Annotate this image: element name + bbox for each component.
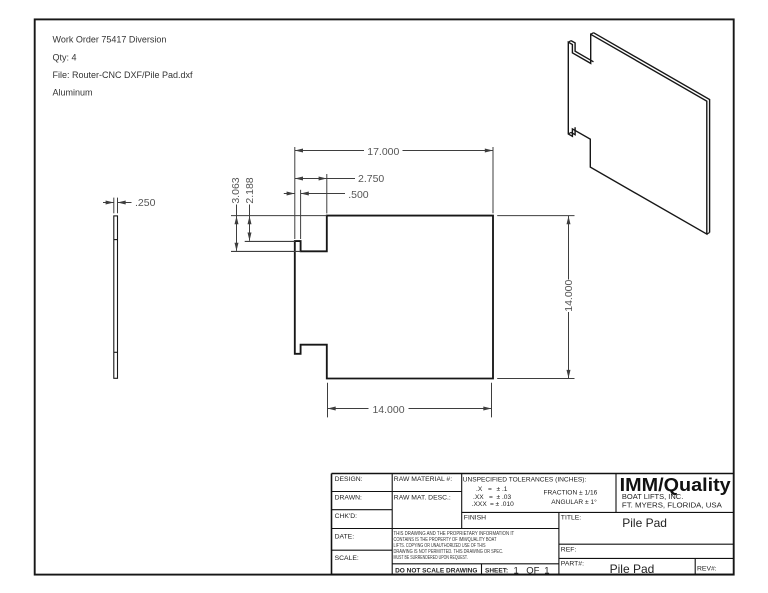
svg-text:SCALE:: SCALE: [335, 555, 359, 562]
svg-text:FINISH: FINISH [464, 515, 486, 522]
svg-text:Pile Pad: Pile Pad [610, 562, 655, 576]
svg-text:2.750: 2.750 [358, 173, 384, 185]
svg-text:REV#:: REV#: [697, 566, 717, 573]
svg-text:PART#:: PART#: [561, 561, 584, 568]
svg-text:.500: .500 [348, 189, 369, 201]
svg-text:UNSPECIFIED TOLERANCES (INCHES: UNSPECIFIED TOLERANCES (INCHES): [463, 476, 587, 483]
svg-text:ANGULAR ± 1°: ANGULAR ± 1° [551, 498, 597, 506]
svg-text:.250: .250 [135, 197, 156, 209]
svg-text:DESIGN:: DESIGN: [335, 476, 363, 483]
svg-text:14.000: 14.000 [372, 404, 404, 416]
svg-text:.XXX=± .010: .XXX=± .010 [472, 501, 514, 508]
svg-text:RAW MAT. DESC.:: RAW MAT. DESC.: [394, 495, 451, 502]
svg-text:TITLE:: TITLE: [561, 515, 582, 522]
svg-text:DRAWN:: DRAWN: [335, 495, 362, 502]
svg-text:DATE:: DATE: [335, 533, 355, 540]
svg-text:BOAT LIFTS, INC.: BOAT LIFTS, INC. [622, 492, 683, 501]
svg-text:DO NOT SCALE DRAWING: DO NOT SCALE DRAWING [395, 568, 477, 575]
svg-text:FRACTION ± 1/16: FRACTION ± 1/16 [544, 490, 598, 497]
svg-text:Work Order 75417 Diversion: Work Order 75417 Diversion [53, 35, 167, 45]
svg-text:14.000: 14.000 [563, 279, 575, 311]
svg-text:Pile Pad: Pile Pad [622, 516, 667, 530]
svg-text:MUST BE SURRENDERED UPON REQUE: MUST BE SURRENDERED UPON REQUEST. [394, 555, 468, 561]
svg-text:CHK'D:: CHK'D: [335, 513, 358, 520]
svg-text:REF:: REF: [561, 547, 577, 554]
svg-text:.XX=± .03: .XX=± .03 [473, 494, 511, 501]
svg-text:FT. MYERS, FLORIDA, USA: FT. MYERS, FLORIDA, USA [622, 501, 722, 510]
svg-text:Aluminum: Aluminum [53, 88, 93, 98]
svg-text:2.188: 2.188 [244, 177, 256, 203]
svg-text:File: Router-CNC DXF/Pile Pad.: File: Router-CNC DXF/Pile Pad.dxf [53, 70, 194, 80]
svg-text:RAW MATERIAL #:: RAW MATERIAL #: [394, 476, 452, 483]
svg-text:17.000: 17.000 [367, 146, 399, 158]
svg-text:3.063: 3.063 [230, 177, 242, 203]
svg-text:SHEET:: SHEET: [485, 568, 508, 575]
svg-text:Qty: 4: Qty: 4 [53, 52, 77, 62]
